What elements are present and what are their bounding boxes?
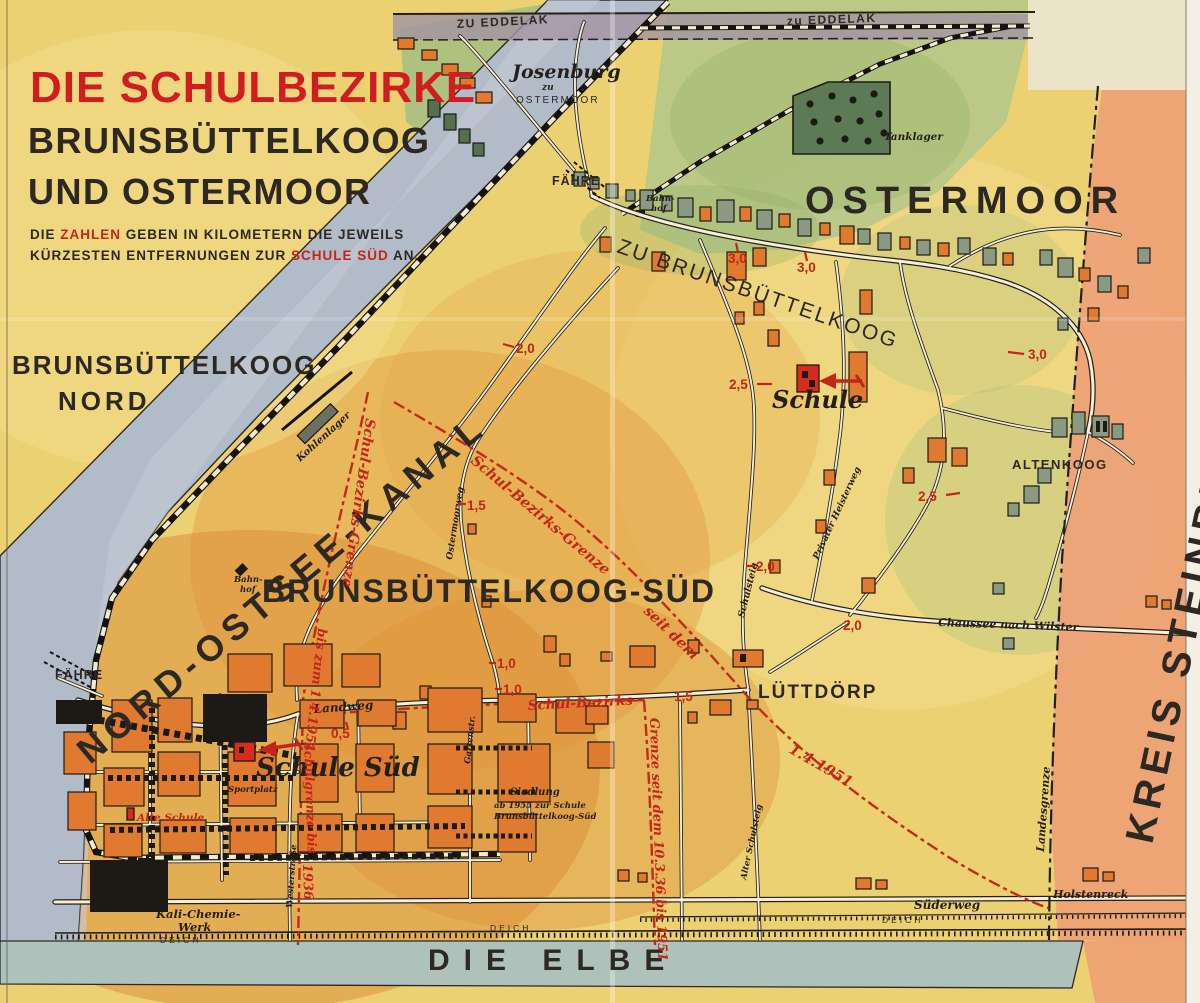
kali-chemie-works-2	[90, 860, 168, 912]
place-bahnhof-sued-1: Bahn-	[233, 575, 263, 585]
place-faehre-sued: FÄHRE	[55, 667, 103, 682]
place-josenburg: Josenburg	[509, 61, 621, 83]
region-ostermoor: OSTERMOOR	[805, 180, 1126, 222]
map-title: DIE SCHULBEZIRKE	[30, 63, 476, 112]
distance-value: 2,0	[756, 559, 775, 574]
region-brunsbuettelkoog-sued: BRUNSBÜTTELKOOG-SÜD	[262, 573, 716, 609]
distance-value: 3,0	[797, 260, 816, 275]
map-title-line3: UND OSTERMOOR	[28, 171, 372, 212]
place-kali-chemie-1: Kali-Chemie-	[155, 907, 241, 921]
kali-chemie-works	[203, 694, 267, 742]
place-siedlung-1: Siedlung	[510, 787, 560, 798]
place-sportplatz: Sportplatz	[228, 785, 278, 795]
road-suederweg: Süderweg	[914, 898, 980, 912]
place-tanklager: Tanklager	[884, 131, 944, 143]
schule-sued-building	[234, 742, 255, 761]
map-sheet: DIE SCHULBEZIRKE BRUNSBÜTTELKOOG UND OST…	[0, 0, 1200, 1003]
place-bahnhof-nord-2: hof	[651, 204, 668, 214]
place-bahnhof-sued-2: hof	[240, 585, 257, 595]
region-nord: NORD	[58, 386, 151, 416]
place-schule-sued: Schule Süd	[256, 753, 420, 783]
legend-note-line1: DIE ZAHLEN GEBEN IN KILOMETERN DIE JEWEI…	[30, 227, 404, 242]
road-deich-1: DEICH	[160, 935, 201, 945]
boundary-label-1936-b: 1936	[299, 864, 315, 901]
holstenreck-label: Holstenreck	[1052, 888, 1129, 901]
place-alte-schule: Alte Schule	[136, 812, 205, 824]
place-faehre-nord: FÄHRE	[552, 173, 600, 188]
legend-note-line2: KÜRZESTEN ENTFERNUNGEN ZUR SCHULE SÜD AN…	[30, 248, 419, 263]
place-kali-chemie-2: Werk	[178, 920, 211, 934]
place-josenburg-zu: zu	[541, 83, 554, 93]
schulbezirke-map: DIE SCHULBEZIRKE BRUNSBÜTTELKOOG UND OST…	[0, 0, 1200, 1003]
distance-value: 2,5	[729, 377, 748, 392]
region-brunsbuettelkoog-nord: BRUNSBÜTTELKOOG	[12, 350, 316, 380]
distance-value: 3,0	[1028, 347, 1047, 362]
place-siedlung-3: Brunsbüttelkoog-Süd	[493, 811, 596, 822]
distance-value: 3,0	[728, 251, 747, 266]
alte-schule-building	[127, 808, 134, 820]
road-deich-2: DEICH	[490, 923, 531, 933]
road-deich-3: DEICH	[882, 915, 923, 925]
distance-value: 1,5	[674, 689, 693, 704]
map-title-line2: BRUNSBÜTTELKOOG	[28, 120, 431, 161]
region-die-elbe: DIE ELBE	[428, 944, 678, 977]
distance-value: 2,0	[516, 341, 535, 356]
distance-value: 1,0	[503, 682, 522, 697]
place-altenkoog: ALTENKOOG	[1012, 457, 1108, 472]
place-bahnhof-nord-1: Bahn-	[645, 194, 675, 204]
distance-value: 1,0	[497, 656, 516, 671]
place-luettdoerp: LÜTTDÖRP	[758, 682, 877, 703]
place-siedlung-2: ab 1955 zur Schule	[494, 801, 586, 811]
distance-value: 2,0	[843, 618, 862, 633]
place-schule-ostermoor: Schule	[772, 385, 863, 414]
distance-value: 2,5	[918, 489, 937, 504]
place-josenburg-ostermoor: OSTERMOOR	[516, 95, 600, 106]
distance-value: 0,5	[331, 726, 350, 741]
distance-value: 1,5	[467, 498, 486, 513]
tanklager-area	[793, 82, 890, 154]
